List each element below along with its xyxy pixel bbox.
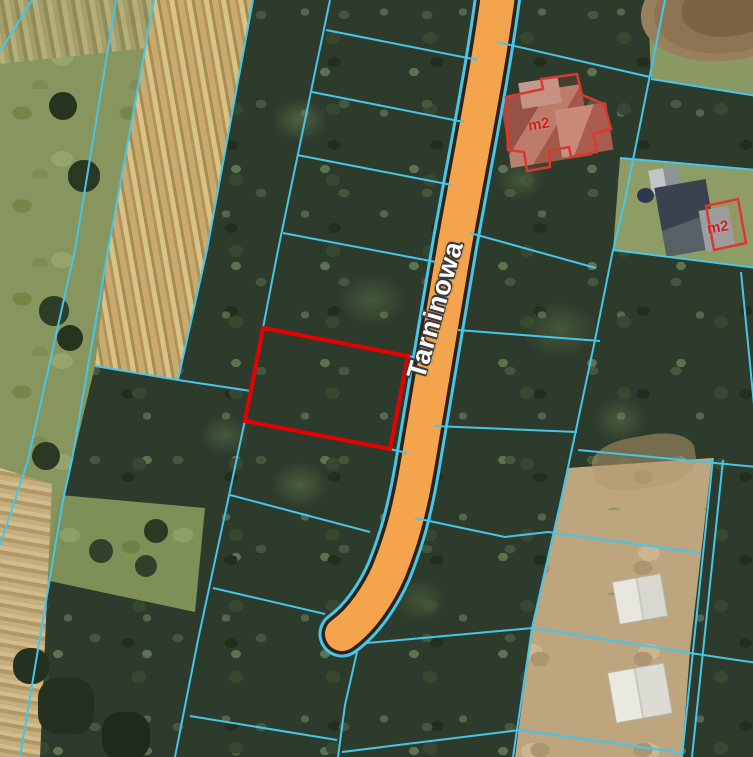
building-label-m2: m2	[706, 217, 730, 237]
building-footprint-house[interactable]	[506, 74, 611, 171]
map-vector-overlay	[0, 0, 753, 757]
parcel-boundary-lines	[0, 0, 753, 757]
building-label-m2: m2	[527, 114, 551, 134]
aerial-cadastral-map[interactable]: Tarninowa m2 m2	[0, 0, 753, 757]
highlighted-parcel[interactable]	[245, 328, 408, 449]
